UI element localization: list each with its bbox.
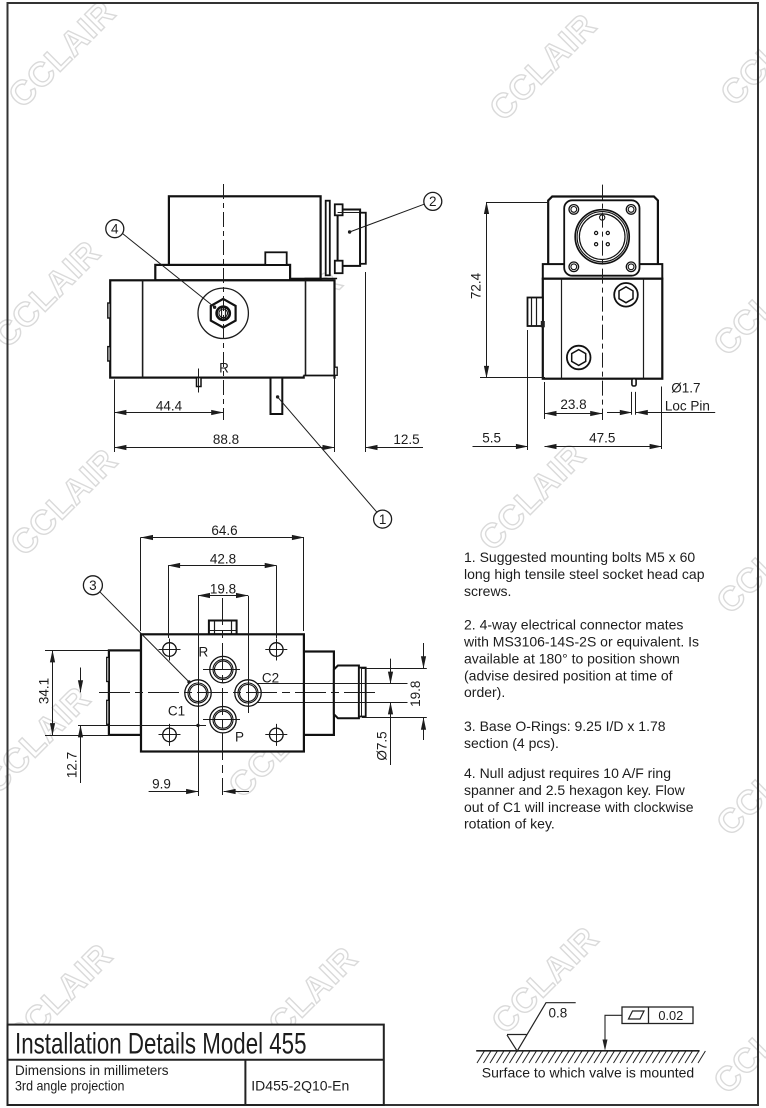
svg-text:4. Null adjust requires 10 A/F: 4. Null adjust requires 10 A/F ring — [464, 765, 671, 781]
svg-text:23.8: 23.8 — [560, 397, 586, 412]
svg-text:Installation Details Model 455: Installation Details Model 455 — [15, 1028, 307, 1061]
svg-text:44.4: 44.4 — [156, 399, 183, 414]
svg-text:3: 3 — [89, 578, 97, 593]
svg-text:0.8: 0.8 — [549, 1006, 568, 1021]
svg-text:9.9: 9.9 — [152, 777, 171, 792]
svg-text:72.4: 72.4 — [469, 272, 484, 299]
svg-text:CCLAIR: CCLAIR — [1, 0, 123, 115]
svg-text:3rd angle projection: 3rd angle projection — [15, 1077, 125, 1093]
svg-text:1: 1 — [379, 512, 387, 527]
svg-text:section (4 pcs).: section (4 pcs). — [464, 735, 559, 751]
svg-text:order).: order). — [464, 684, 505, 700]
svg-text:19.8: 19.8 — [210, 582, 236, 597]
svg-text:CCLAIR: CCLAIR — [484, 919, 606, 1041]
svg-text:R: R — [199, 644, 209, 659]
svg-text:out of C1 will increase with c: out of C1 will increase with clockwise — [464, 799, 694, 815]
svg-text:available at 180° to position: available at 180° to position shown — [464, 650, 680, 666]
svg-text:Surface to which valve is moun: Surface to which valve is mounted — [482, 1065, 694, 1081]
svg-text:CCLAIR: CCLAIR — [3, 441, 125, 563]
svg-text:R: R — [219, 361, 229, 376]
svg-text:C2: C2 — [262, 671, 279, 686]
svg-text:(advise desired position at ti: (advise desired position at time of — [464, 667, 673, 683]
svg-text:long high tensile steel socket: long high tensile steel socket head cap — [464, 566, 705, 582]
svg-text:12.7: 12.7 — [65, 752, 80, 778]
svg-text:Dimensions in millimeters: Dimensions in millimeters — [15, 1062, 169, 1078]
svg-text:1. Suggested mounting bolts M5: 1. Suggested mounting bolts M5 x 60 — [464, 549, 695, 565]
svg-text:CCLAIR: CCLAIR — [482, 6, 604, 128]
svg-text:12.5: 12.5 — [393, 432, 419, 447]
svg-text:2. 4-way electrical connector: 2. 4-way electrical connector mates — [464, 617, 683, 633]
svg-text:19.8: 19.8 — [408, 681, 423, 707]
svg-text:screws.: screws. — [464, 583, 511, 599]
svg-text:4: 4 — [111, 221, 119, 236]
svg-text:with MS3106-14S-2S or equivale: with MS3106-14S-2S or equivalent. Is — [463, 634, 699, 650]
svg-text:5.5: 5.5 — [482, 431, 501, 446]
svg-text:2: 2 — [429, 194, 437, 209]
svg-text:Loc Pin: Loc Pin — [665, 398, 710, 413]
svg-text:88.8: 88.8 — [213, 432, 239, 447]
svg-text:47.5: 47.5 — [589, 431, 615, 446]
svg-text:ID455-2Q10-En: ID455-2Q10-En — [251, 1077, 349, 1093]
svg-text:Ø7.5: Ø7.5 — [375, 731, 390, 760]
svg-text:P: P — [235, 729, 244, 744]
svg-text:CCLAIR: CCLAIR — [471, 436, 593, 558]
svg-text:spanner and 2.5 hexagon key. F: spanner and 2.5 hexagon key. Flow — [464, 782, 686, 798]
svg-text:C1: C1 — [168, 703, 185, 718]
svg-text:rotation of key.: rotation of key. — [464, 816, 555, 832]
svg-text:64.6: 64.6 — [211, 523, 237, 538]
svg-text:Ø1.7: Ø1.7 — [671, 381, 700, 396]
svg-text:0.02: 0.02 — [658, 1008, 683, 1023]
svg-text:3. Base O-Rings: 9.25 I/D x 1.: 3. Base O-Rings: 9.25 I/D x 1.78 — [464, 718, 666, 734]
svg-text:CCLAIR: CCLAIR — [0, 233, 108, 355]
svg-text:42.8: 42.8 — [210, 552, 236, 567]
svg-text:34.1: 34.1 — [37, 678, 52, 704]
